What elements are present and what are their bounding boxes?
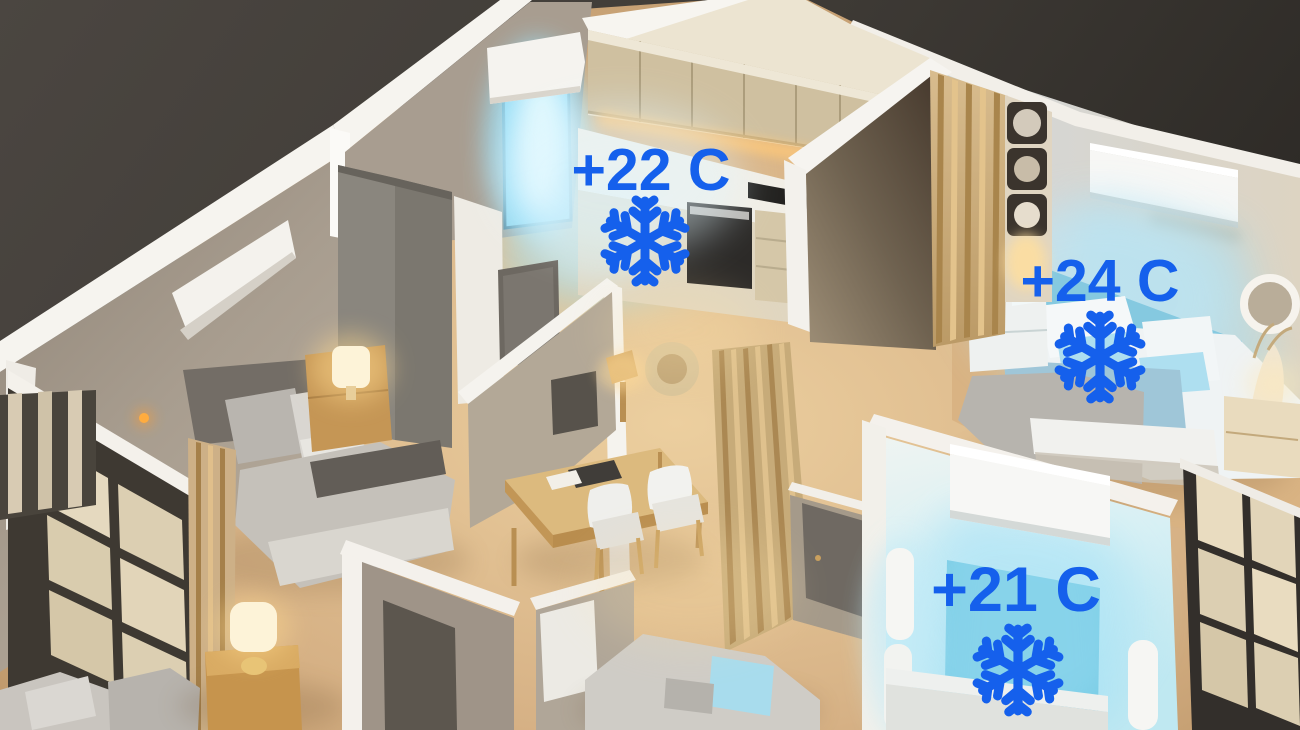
svg-text:+21 C: +21 C <box>931 555 1101 625</box>
svg-text:+22 C: +22 C <box>571 137 730 203</box>
svg-text:+24 C: +24 C <box>1020 248 1179 314</box>
